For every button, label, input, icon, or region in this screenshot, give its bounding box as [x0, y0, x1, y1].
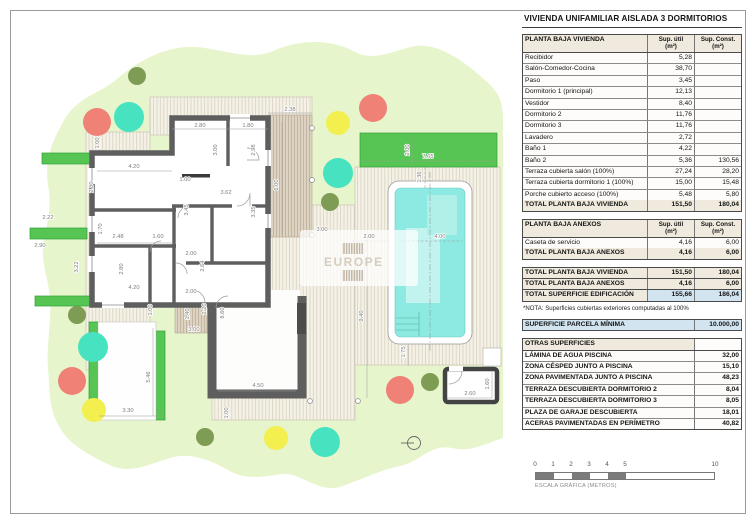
- dimension-label: 3.30: [122, 408, 133, 414]
- table-otras-superficies: OTRAS SUPERFICIES LÁMINA DE AGUA PISCINA…: [522, 338, 742, 430]
- row-value: 10.000,00: [694, 320, 741, 330]
- row-value: 180,04: [694, 200, 741, 210]
- drawing-sheet: EUROPE 2.801.803.002.982.386.001.004.202…: [0, 0, 756, 528]
- row-label: ZONA PAVIMENTADA JUNTO A PISCINA: [523, 373, 694, 383]
- table-header-row: OTRAS SUPERFICIES: [523, 339, 741, 350]
- row-value: 4,22: [647, 144, 694, 154]
- dimension-label: 4.20: [128, 285, 139, 291]
- table-row: TOTAL SUPERFICIE EDIFICACIÓN155,66186,04: [523, 289, 741, 300]
- row-label: LÁMINA DE AGUA PISCINA: [523, 351, 694, 361]
- row-value: 5,36: [647, 156, 694, 166]
- row-value: 6,00: [694, 238, 741, 248]
- row-value: 180,04: [694, 268, 741, 278]
- table-row: TOTAL PLANTA BAJA VIVIENDA151,50180,04: [523, 200, 741, 210]
- table-row: LÁMINA DE AGUA PISCINA32,00: [523, 351, 741, 361]
- table-row: TOTAL PLANTA BAJA VIVIENDA151,50180,04: [523, 268, 741, 278]
- area-tables-panel: VIVIENDA UNIFAMILIAR AISLADA 3 DORMITORI…: [522, 12, 742, 430]
- row-label: TERRAZA DESCUBIERTA DORMITORIO 3: [523, 396, 694, 406]
- row-value: 155,66: [647, 290, 694, 300]
- table-row: Lavadero2,72: [523, 132, 741, 143]
- dimension-label: 3.00: [316, 227, 327, 233]
- table-row: TERRAZA DESCUBIERTA DORMITORIO 28,04: [523, 384, 741, 395]
- table-row: TOTAL PLANTA BAJA ANEXOS4,166,00: [523, 248, 741, 258]
- row-label: PLAZA DE GARAJE DESCUBIERTA: [523, 408, 694, 418]
- scale-tick: 2: [569, 461, 573, 468]
- dimension-label: 8.60: [220, 307, 226, 318]
- table-row: Terraza cubierta salón (100%)27,2428,20: [523, 166, 741, 177]
- row-value: 48,23: [694, 373, 741, 383]
- watermark-text: EUROPE: [324, 255, 384, 269]
- anexos-rows: Caseta de servicio4,166,00: [523, 238, 741, 248]
- row-label: TOTAL SUPERFICIE EDIFICACIÓN: [523, 290, 647, 300]
- row-label: Caseta de servicio: [523, 238, 647, 248]
- dimension-label: 1.36: [417, 171, 423, 182]
- row-value: 15,10: [694, 362, 741, 372]
- row-value: 186,04: [694, 290, 741, 300]
- dimension-label: 4.00: [434, 234, 445, 240]
- dimension-label: 3.00: [188, 327, 199, 333]
- vivienda-total: TOTAL PLANTA BAJA VIVIENDA151,50180,04: [523, 200, 741, 210]
- scale-ticks: 01234510: [535, 461, 720, 470]
- table-row: ZONA CÉSPED JUNTO A PISCINA15,10: [523, 361, 741, 372]
- dimension-label: 2.00: [185, 289, 196, 295]
- table-row: ACERAS PAVIMENTADAS EN PERÍMETRO40,82: [523, 418, 741, 429]
- otras-rows: LÁMINA DE AGUA PISCINA32,00ZONA CÉSPED J…: [523, 351, 741, 430]
- row-label: Baño 1: [523, 144, 647, 154]
- dimension-label: 2.98: [251, 144, 257, 155]
- dimension-label: 3.62: [220, 190, 231, 196]
- graphic-scale: 01234510 ESCALA GRÁFICA (METROS): [535, 461, 720, 497]
- row-label: TOTAL PLANTA BAJA VIVIENDA: [523, 268, 647, 278]
- hedge-3: [35, 296, 98, 306]
- scale-tick: 3: [587, 461, 591, 468]
- scale-tick: 10: [711, 461, 718, 468]
- row-value: 6,00: [694, 279, 741, 289]
- dimension-label: 5.46: [146, 371, 152, 382]
- dimension-label: 9.40: [359, 310, 365, 321]
- row-label: TERRAZA DESCUBIERTA DORMITORIO 2: [523, 385, 694, 395]
- dimension-label: 6.00: [274, 179, 280, 190]
- row-value: 12,13: [647, 87, 694, 97]
- table-row: SUPERFICIE PARCELA MÍNIMA10.000,00: [523, 320, 741, 330]
- dimension-label: 2.00: [185, 251, 196, 257]
- anexos-total: TOTAL PLANTA BAJA ANEXOS4,166,00: [523, 248, 741, 258]
- table-row: PLAZA DE GARAJE DESCUBIERTA18,01: [523, 407, 741, 418]
- row-value: [694, 133, 741, 143]
- table-planta-baja-vivienda: PLANTA BAJA VIVIENDA Sup. útil(m²) Sup. …: [522, 34, 742, 212]
- row-label: Baño 2: [523, 156, 647, 166]
- table-row: TOTAL PLANTA BAJA ANEXOS4,166,00: [523, 278, 741, 289]
- col-header-sup-util: Sup. útil(m²): [647, 220, 694, 237]
- row-value: 151,50: [647, 268, 694, 278]
- col-header-sup-const: Sup. Const.(m²): [694, 35, 741, 52]
- table-row: Dormitorio 211,76: [523, 109, 741, 120]
- scale-tick: 1: [551, 461, 555, 468]
- vivienda-rows: Recibidor5,28Salón-Comedor-Cocina38,70Pa…: [523, 53, 741, 200]
- row-label: Salón-Comedor-Cocina: [523, 64, 647, 74]
- row-value: 8,05: [694, 396, 741, 406]
- row-value: 5,48: [647, 190, 694, 200]
- dimension-label: 3.00: [213, 144, 219, 155]
- dimension-label: 1.60: [152, 234, 163, 240]
- table-row: Recibidor5,28: [523, 53, 741, 63]
- row-label: ACERAS PAVIMENTADAS EN PERÍMETRO: [523, 419, 694, 429]
- row-value: 4,16: [647, 238, 694, 248]
- row-value: 8,40: [647, 99, 694, 109]
- dimension-label: 2.90: [34, 243, 45, 249]
- row-label: SUPERFICIE PARCELA MÍNIMA: [523, 320, 694, 330]
- dimension-label: 2.64: [200, 260, 206, 272]
- scale-tick: 5: [623, 461, 627, 468]
- dimension-label: 1.00: [224, 407, 230, 418]
- row-value: [694, 53, 741, 63]
- row-label: Terraza cubierta dormitorio 1 (100%): [523, 178, 647, 188]
- empty-header-cell: [694, 339, 741, 349]
- row-value: [694, 99, 741, 109]
- gate-box: [483, 348, 501, 366]
- row-value: 151,50: [647, 200, 694, 210]
- row-value: 18,01: [694, 408, 741, 418]
- row-label: Dormitorio 1 (principal): [523, 87, 647, 97]
- dimension-label: 2.80: [89, 181, 95, 192]
- table-row: Paso3,45: [523, 75, 741, 86]
- row-label: Terraza cubierta salón (100%): [523, 167, 647, 177]
- row-value: 15,00: [647, 178, 694, 188]
- table-row: Baño 14,22: [523, 143, 741, 154]
- dimension-label: 1.40: [185, 308, 191, 319]
- row-label: Porche cubierto acceso (100%): [523, 190, 647, 200]
- row-value: [694, 110, 741, 120]
- row-value: 5,28: [647, 53, 694, 63]
- row-label: Paso: [523, 76, 647, 86]
- table-row: Vestidor8,40: [523, 98, 741, 109]
- dimension-label: 2.48: [112, 234, 123, 240]
- scale-tick: 4: [605, 461, 609, 468]
- row-label: Vestidor: [523, 99, 647, 109]
- row-value: 4,16: [647, 248, 694, 258]
- dimension-label: 1.80: [242, 123, 253, 129]
- dimension-label: 7.65: [422, 154, 433, 160]
- table-row: Baño 25,36130,56: [523, 155, 741, 166]
- dimension-label: 2.80: [194, 123, 205, 129]
- col-header-sup-util: Sup. útil(m²): [647, 35, 694, 52]
- row-value: [694, 76, 741, 86]
- table-row: ZONA PAVIMENTADA JUNTO A PISCINA48,23: [523, 372, 741, 383]
- table-totales: TOTAL PLANTA BAJA VIVIENDA151,50180,04TO…: [522, 267, 742, 302]
- row-value: 27,24: [647, 167, 694, 177]
- row-label: Lavadero: [523, 133, 647, 143]
- dimension-label: 4.20: [128, 164, 139, 170]
- dimension-label: 2.00: [405, 144, 411, 155]
- dimension-label: 2.38: [284, 107, 295, 113]
- dimension-label: 1.00: [179, 177, 190, 183]
- sheet-title: VIVIENDA UNIFAMILIAR AISLADA 3 DORMITORI…: [522, 12, 742, 28]
- row-value: 40,82: [694, 419, 741, 429]
- table-header-label: PLANTA BAJA VIVIENDA: [523, 35, 647, 52]
- table-row: Terraza cubierta dormitorio 1 (100%)15,0…: [523, 177, 741, 188]
- dimension-label: 1.60: [485, 378, 491, 389]
- watermark: EUROPE: [300, 230, 418, 286]
- table-planta-baja-anexos: PLANTA BAJA ANEXOS Sup. útil(m²) Sup. Co…: [522, 219, 742, 260]
- row-value: 11,76: [647, 121, 694, 131]
- table-header-label: PLANTA BAJA ANEXOS: [523, 220, 647, 237]
- row-value: [694, 87, 741, 97]
- dimension-label: 1.70: [98, 223, 104, 234]
- sliding-door-block: [297, 303, 306, 334]
- row-label: Dormitorio 2: [523, 110, 647, 120]
- table-parcela-minima: SUPERFICIE PARCELA MÍNIMA10.000,00: [522, 319, 742, 331]
- uncovered-terrace: [98, 322, 156, 420]
- dimension-label: 3.35: [251, 206, 257, 217]
- row-label: TOTAL PLANTA BAJA ANEXOS: [523, 279, 647, 289]
- row-value: 11,76: [647, 110, 694, 120]
- table-header-row: PLANTA BAJA ANEXOS Sup. útil(m²) Sup. Co…: [523, 220, 741, 238]
- row-value: 3,45: [647, 76, 694, 86]
- scale-tick: 0: [533, 461, 537, 468]
- scale-caption: ESCALA GRÁFICA (METROS): [535, 483, 720, 489]
- row-value: 15,48: [694, 178, 741, 188]
- row-label: ZONA CÉSPED JUNTO A PISCINA: [523, 362, 694, 372]
- table-row: Dormitorio 1 (principal)12,13: [523, 86, 741, 97]
- hedge-2: [30, 228, 87, 239]
- table-row: TERRAZA DESCUBIERTA DORMITORIO 38,05: [523, 395, 741, 406]
- row-value: [694, 144, 741, 154]
- dimension-label: 2.20: [202, 303, 208, 314]
- row-value: 4,16: [647, 279, 694, 289]
- row-label: TOTAL PLANTA BAJA VIVIENDA: [523, 200, 647, 210]
- row-value: [694, 121, 741, 131]
- row-value: 5,80: [694, 190, 741, 200]
- row-value: 38,70: [647, 64, 694, 74]
- col-header-sup-const: Sup. Const.(m²): [694, 220, 741, 237]
- row-value: 8,04: [694, 385, 741, 395]
- dimension-label: 1.00: [148, 304, 154, 315]
- dimension-label: 2.80: [119, 263, 125, 274]
- dimension-label: 2.00: [363, 234, 374, 240]
- table-header-label: OTRAS SUPERFICIES: [523, 339, 694, 349]
- dimension-label: 3.22: [74, 261, 80, 272]
- table-row: Salón-Comedor-Cocina38,70: [523, 63, 741, 74]
- scale-bar: [535, 472, 715, 480]
- table-header-row: PLANTA BAJA VIVIENDA Sup. útil(m²) Sup. …: [523, 35, 741, 53]
- row-label: TOTAL PLANTA BAJA ANEXOS: [523, 248, 647, 258]
- dimension-label: 1.00: [95, 137, 101, 148]
- dimension-label: 4.50: [252, 383, 263, 389]
- row-value: 32,00: [694, 351, 741, 361]
- row-value: [694, 64, 741, 74]
- table-row: Porche cubierto acceso (100%)5,485,80: [523, 189, 741, 200]
- row-label: Recibidor: [523, 53, 647, 63]
- row-value: 28,20: [694, 167, 741, 177]
- table-row: Caseta de servicio4,166,00: [523, 238, 741, 248]
- grass-zone-pool: [360, 133, 497, 167]
- dimension-label: 2.22: [42, 215, 53, 221]
- row-value: 6,00: [694, 248, 741, 258]
- row-value: 130,56: [694, 156, 741, 166]
- footnote: *NOTA: Superficies cubiertas exteriores …: [523, 305, 742, 312]
- dimension-label: 2.60: [464, 391, 475, 397]
- table-row: Dormitorio 311,76: [523, 120, 741, 131]
- hedge-v2: [156, 331, 165, 420]
- row-value: 2,72: [647, 133, 694, 143]
- dimension-label: 3.45: [184, 204, 190, 215]
- covered-terrace-strip: [268, 115, 312, 237]
- row-label: Dormitorio 3: [523, 121, 647, 131]
- dimension-label: 1.75: [401, 346, 407, 357]
